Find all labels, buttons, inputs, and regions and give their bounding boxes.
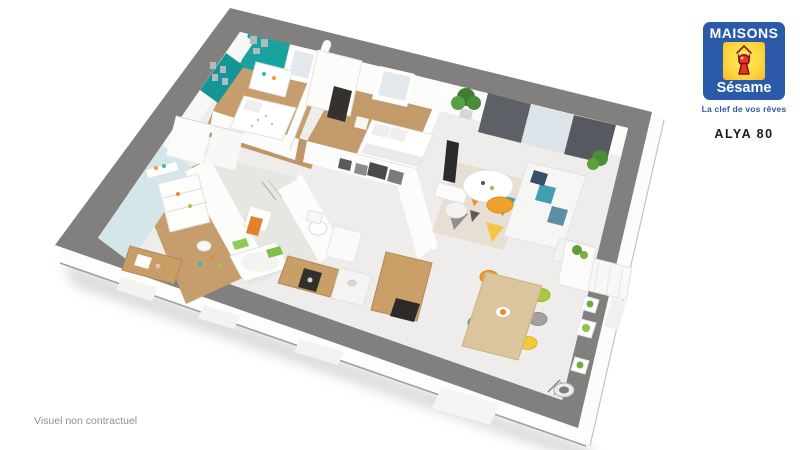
- pouf: [445, 202, 467, 218]
- logo-brand-bottom: Sésame: [717, 81, 772, 95]
- orange-ottoman: [487, 197, 513, 213]
- disclaimer-text: Visuel non contractuel: [34, 415, 137, 427]
- sink: [347, 280, 357, 287]
- logo-brand-top: MAISONS: [710, 26, 779, 40]
- chair: [197, 241, 211, 251]
- maisons-sesame-logo: MAISONS Sésame: [703, 22, 785, 100]
- keyhole-icon: [723, 42, 765, 80]
- keyhole-house-icon: [723, 42, 765, 80]
- brand-block: MAISONS Sésame La clef de vos rêves ALYA…: [698, 22, 790, 141]
- logo-tagline: La clef de vos rêves: [698, 104, 790, 114]
- page: MAISONS Sésame La clef de vos rêves ALYA…: [0, 0, 800, 450]
- floorplan-3d-render: [0, 0, 800, 450]
- plan-model-name: ALYA 80: [698, 127, 790, 141]
- coffee-table: [463, 170, 513, 202]
